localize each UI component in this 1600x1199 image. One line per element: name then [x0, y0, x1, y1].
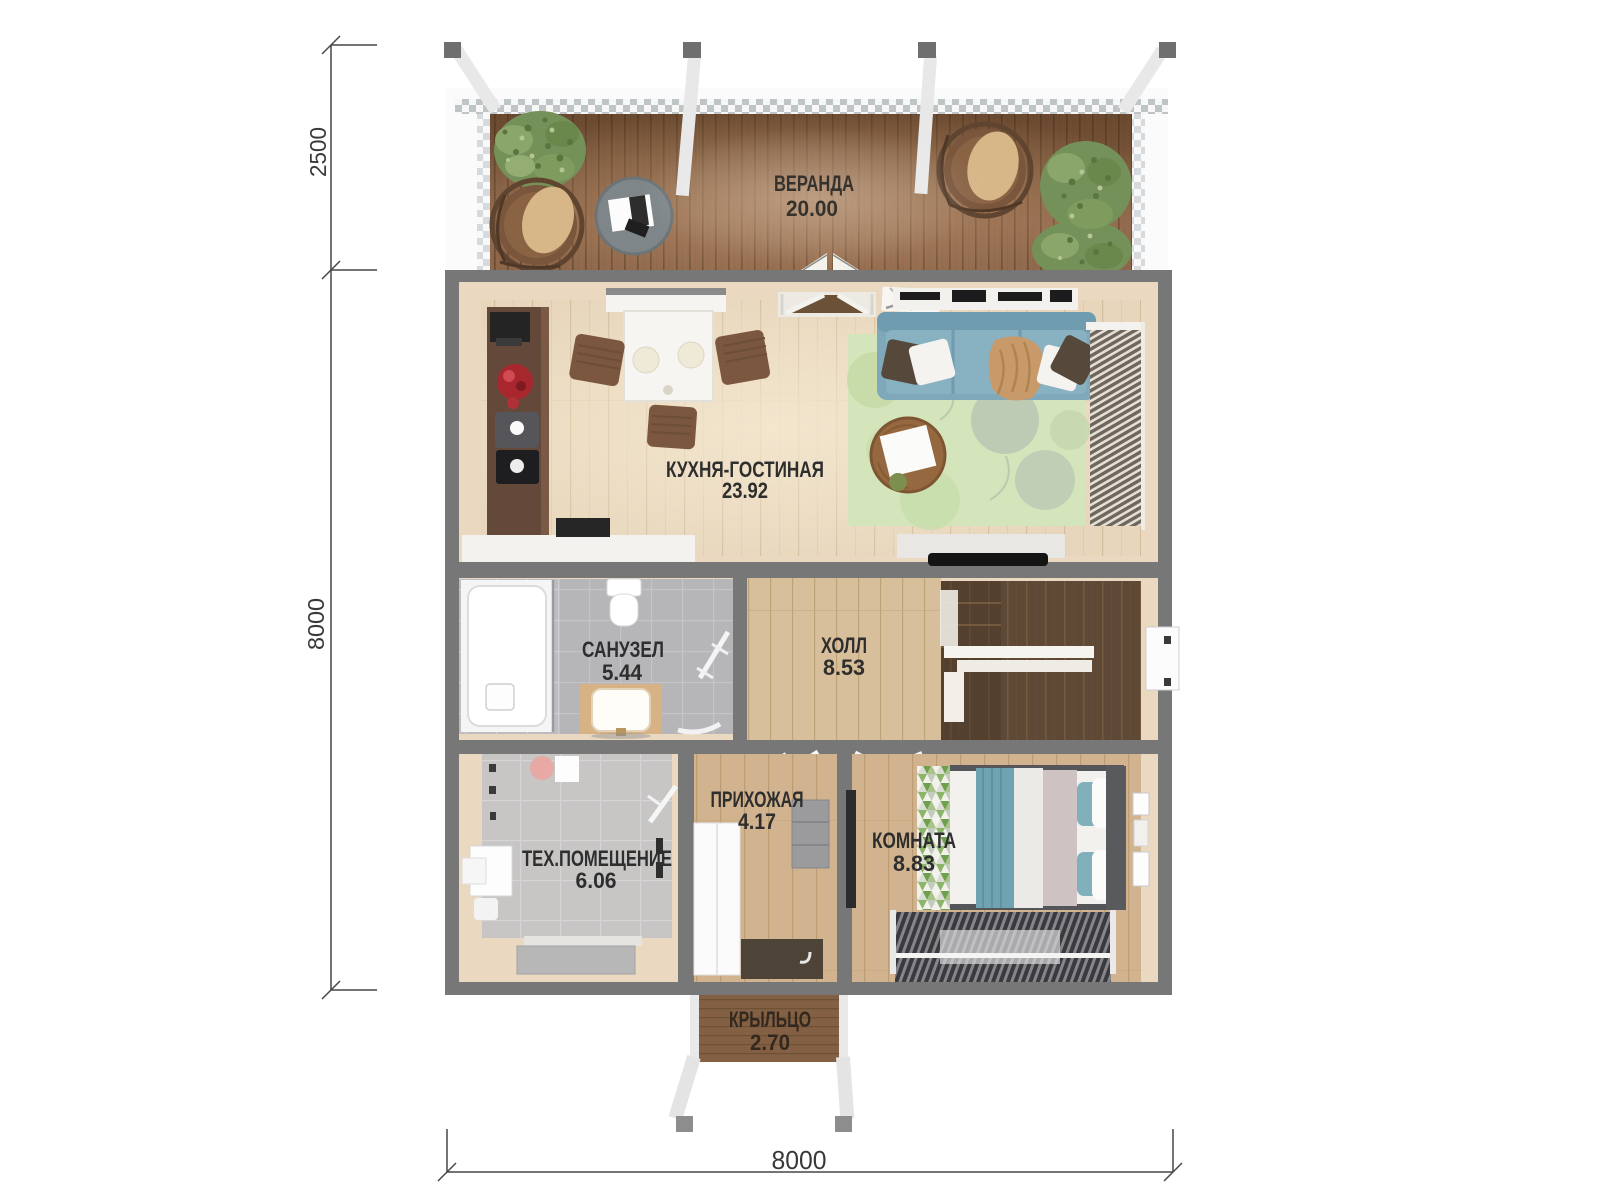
svg-text:8.83: 8.83	[893, 851, 935, 876]
svg-text:8000: 8000	[772, 1145, 827, 1175]
svg-text:САНУЗЕЛ: САНУЗЕЛ	[582, 637, 664, 662]
svg-text:4.17: 4.17	[738, 809, 776, 834]
svg-text:ВЕРАНДА: ВЕРАНДА	[774, 171, 854, 196]
svg-text:2500: 2500	[305, 127, 331, 177]
svg-text:КОМНАТА: КОМНАТА	[872, 828, 956, 853]
svg-text:20.00: 20.00	[786, 196, 838, 221]
svg-text:КРЫЛЬЦО: КРЫЛЬЦО	[729, 1007, 811, 1032]
svg-text:5.44: 5.44	[602, 660, 643, 685]
svg-text:8.53: 8.53	[823, 655, 865, 680]
svg-text:2.70: 2.70	[750, 1030, 790, 1055]
svg-text:8000: 8000	[303, 598, 329, 650]
svg-text:23.92: 23.92	[722, 478, 768, 503]
svg-text:6.06: 6.06	[576, 868, 617, 893]
